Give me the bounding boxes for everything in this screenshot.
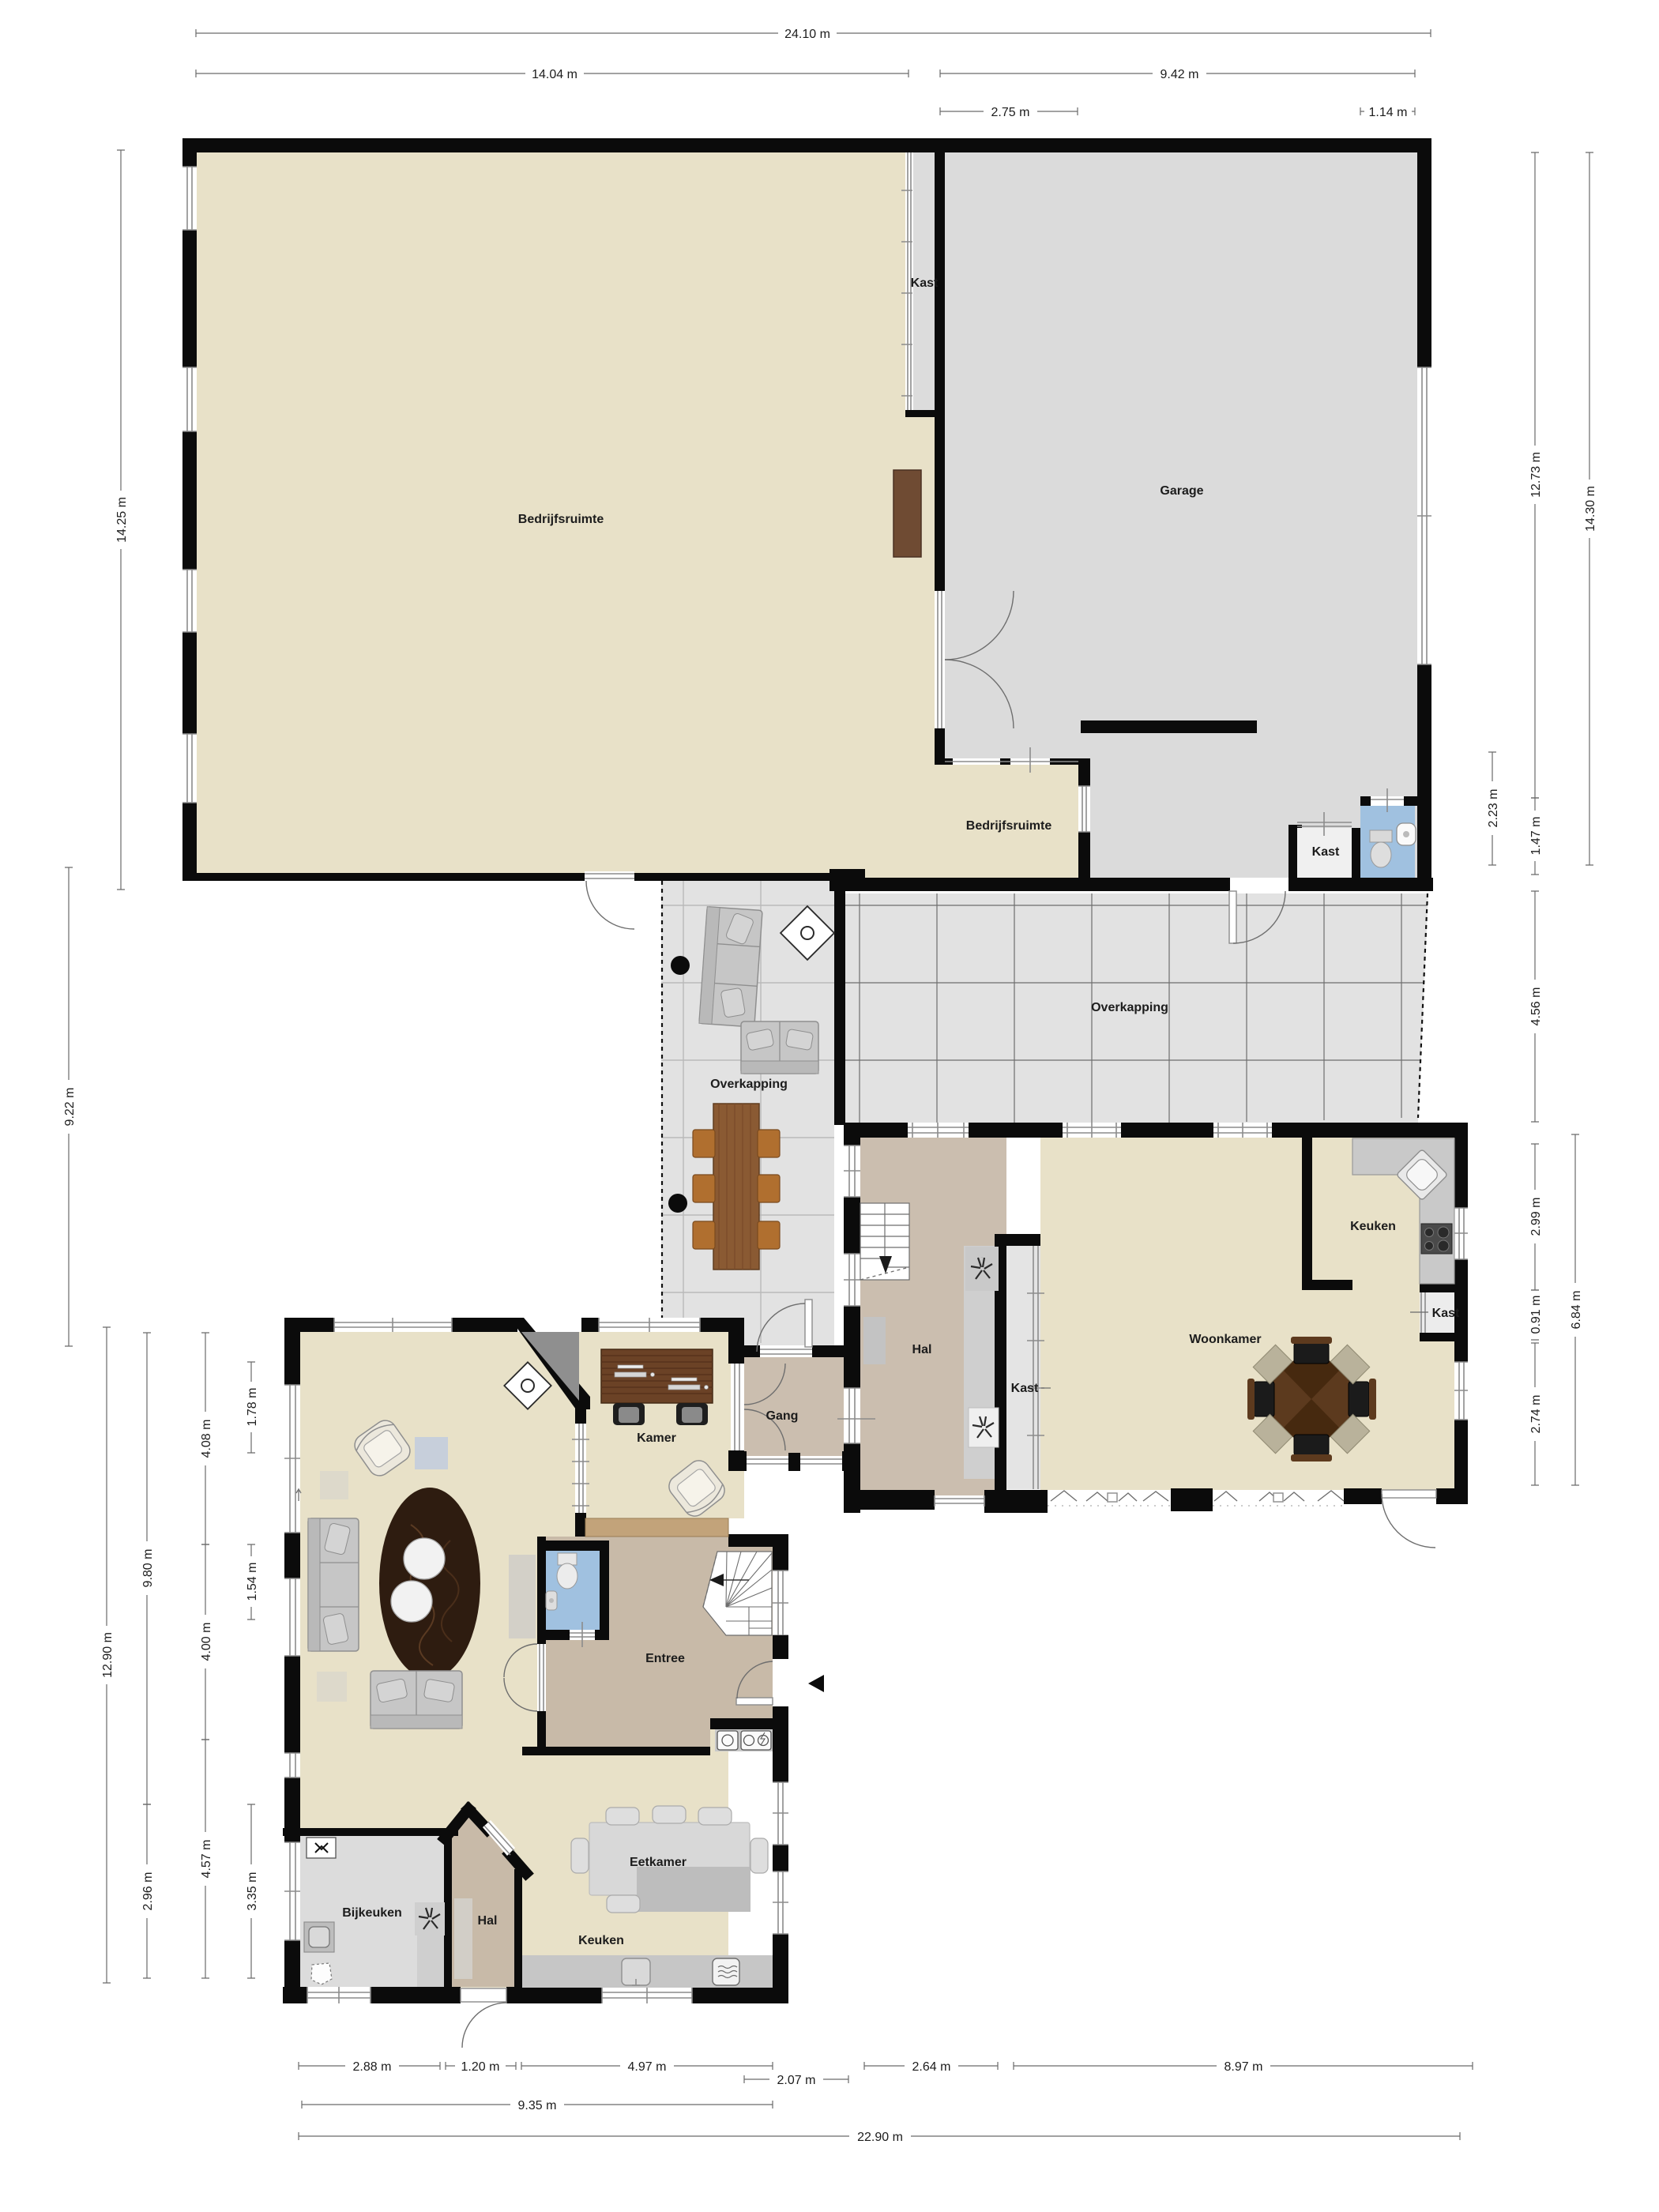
svg-text:4.00 m: 4.00 m bbox=[200, 1623, 213, 1661]
svg-text:1.78 m: 1.78 m bbox=[246, 1388, 259, 1427]
svg-text:1.47 m: 1.47 m bbox=[1529, 817, 1543, 856]
svg-text:2.75 m: 2.75 m bbox=[991, 106, 1030, 119]
svg-text:Bedrijfsruimte: Bedrijfsruimte bbox=[518, 513, 604, 526]
svg-text:Kast: Kast bbox=[1011, 1382, 1039, 1395]
svg-text:2.23 m: 2.23 m bbox=[1487, 789, 1500, 828]
svg-text:4.97 m: 4.97 m bbox=[628, 2060, 667, 2074]
svg-text:2.64 m: 2.64 m bbox=[912, 2060, 951, 2074]
svg-text:Overkapping: Overkapping bbox=[1091, 1001, 1168, 1014]
svg-text:0.91 m: 0.91 m bbox=[1529, 1296, 1543, 1334]
svg-text:4.08 m: 4.08 m bbox=[200, 1420, 213, 1458]
svg-text:4.57 m: 4.57 m bbox=[200, 1840, 213, 1879]
svg-text:Entree: Entree bbox=[645, 1652, 685, 1665]
svg-text:9.80 m: 9.80 m bbox=[141, 1549, 155, 1588]
svg-text:4.56 m: 4.56 m bbox=[1529, 987, 1543, 1026]
svg-text:2.99 m: 2.99 m bbox=[1529, 1198, 1543, 1236]
svg-text:2.74 m: 2.74 m bbox=[1529, 1395, 1543, 1434]
svg-text:14.04 m: 14.04 m bbox=[532, 68, 577, 81]
svg-text:Overkapping: Overkapping bbox=[710, 1078, 788, 1091]
svg-text:Woonkamer: Woonkamer bbox=[1189, 1333, 1261, 1346]
svg-text:Kast: Kast bbox=[1312, 845, 1340, 859]
svg-text:Kast: Kast bbox=[911, 276, 939, 290]
svg-text:9.42 m: 9.42 m bbox=[1161, 68, 1199, 81]
svg-text:12.73 m: 12.73 m bbox=[1529, 452, 1543, 498]
svg-text:2.07 m: 2.07 m bbox=[777, 2074, 816, 2087]
svg-text:12.90 m: 12.90 m bbox=[101, 1632, 115, 1678]
svg-text:Bedrijfsruimte: Bedrijfsruimte bbox=[966, 819, 1052, 833]
svg-text:Hal: Hal bbox=[912, 1343, 932, 1356]
svg-text:1.20 m: 1.20 m bbox=[461, 2060, 500, 2074]
svg-text:14.25 m: 14.25 m bbox=[115, 497, 129, 543]
svg-text:Keuken: Keuken bbox=[1350, 1220, 1396, 1233]
svg-text:2.96 m: 2.96 m bbox=[141, 1872, 155, 1911]
svg-text:Garage: Garage bbox=[1160, 484, 1203, 498]
svg-text:1.14 m: 1.14 m bbox=[1369, 106, 1408, 119]
svg-text:Hal: Hal bbox=[478, 1914, 498, 1928]
svg-text:Kast: Kast bbox=[1432, 1307, 1460, 1320]
svg-text:14.30 m: 14.30 m bbox=[1584, 486, 1597, 532]
svg-text:8.97 m: 8.97 m bbox=[1224, 2060, 1263, 2074]
svg-text:6.84 m: 6.84 m bbox=[1570, 1291, 1583, 1330]
svg-text:Gang: Gang bbox=[766, 1409, 799, 1423]
svg-text:24.10 m: 24.10 m bbox=[784, 28, 830, 41]
svg-text:3.35 m: 3.35 m bbox=[246, 1872, 259, 1911]
svg-text:22.90 m: 22.90 m bbox=[857, 2131, 903, 2144]
svg-text:9.35 m: 9.35 m bbox=[518, 2099, 557, 2112]
svg-text:Kamer: Kamer bbox=[637, 1431, 676, 1445]
svg-text:9.22 m: 9.22 m bbox=[63, 1088, 77, 1127]
svg-text:Eetkamer: Eetkamer bbox=[630, 1856, 687, 1869]
svg-text:Bijkeuken: Bijkeuken bbox=[342, 1906, 402, 1920]
svg-text:1.54 m: 1.54 m bbox=[246, 1563, 259, 1601]
svg-text:Keuken: Keuken bbox=[578, 1934, 624, 1947]
svg-text:2.88 m: 2.88 m bbox=[353, 2060, 392, 2074]
